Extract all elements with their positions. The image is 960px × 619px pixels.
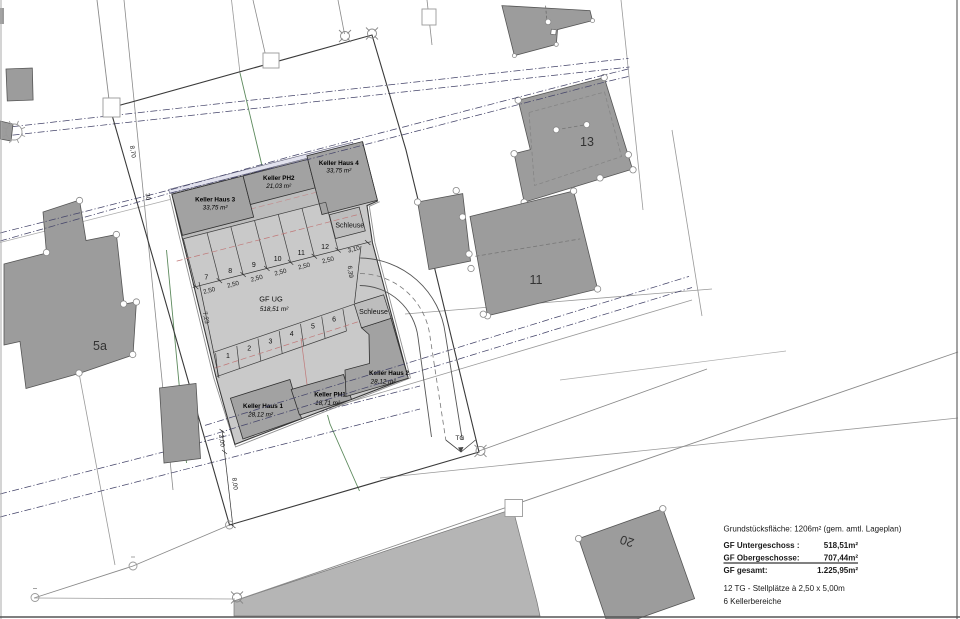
svg-text:GF UG: GF UG <box>259 295 283 304</box>
svg-text:8: 8 <box>228 268 232 275</box>
svg-text:Schleuse: Schleuse <box>335 223 364 230</box>
svg-text:18,71 m²: 18,71 m² <box>315 400 341 407</box>
svg-text:33,75 m²: 33,75 m² <box>326 168 352 175</box>
svg-text:9: 9 <box>252 262 256 269</box>
svg-text:21,03 m²: 21,03 m² <box>265 183 292 190</box>
svg-text:13: 13 <box>580 135 594 149</box>
svg-text:12: 12 <box>321 244 329 251</box>
svg-text:33,75 m²: 33,75 m² <box>203 204 229 211</box>
svg-text:518,51 m²: 518,51 m² <box>260 306 289 313</box>
svg-text:GF Untergeschoss :: GF Untergeschoss : <box>724 541 800 550</box>
svg-text:10: 10 <box>274 256 282 263</box>
svg-text:5a: 5a <box>93 339 107 353</box>
svg-text:7: 7 <box>204 274 208 281</box>
svg-text:518,51m²: 518,51m² <box>824 541 859 550</box>
svg-text:2: 2 <box>247 346 251 353</box>
svg-text:1.225,95m²: 1.225,95m² <box>817 566 858 575</box>
svg-text:GF Obergeschosse:: GF Obergeschosse: <box>724 554 800 563</box>
svg-text:3: 3 <box>268 338 272 345</box>
svg-text:Keller Haus 3: Keller Haus 3 <box>195 197 235 204</box>
svg-text:6 Kellerbereiche: 6 Kellerbereiche <box>724 597 782 606</box>
svg-text:Keller Haus 4: Keller Haus 4 <box>319 160 359 167</box>
svg-text:6: 6 <box>332 316 336 323</box>
svg-text:Schleuse: Schleuse <box>359 309 388 316</box>
svg-text:Grundstücksfläche: 1206m² (gem: Grundstücksfläche: 1206m² (gem. amtl. La… <box>724 525 902 534</box>
svg-text:4: 4 <box>290 331 294 338</box>
svg-text:707,44m²: 707,44m² <box>824 554 859 563</box>
svg-text:Keller Haus 1: Keller Haus 1 <box>243 403 283 410</box>
svg-text:5: 5 <box>311 324 315 331</box>
svg-text:11: 11 <box>298 250 305 257</box>
svg-text:12 TG - Stellplätze à 2,50 x 5: 12 TG - Stellplätze à 2,50 x 5,00m <box>724 584 846 593</box>
svg-text:Keller PH2: Keller PH2 <box>263 175 295 182</box>
svg-text:11: 11 <box>530 273 543 287</box>
svg-text:GF gesamt:: GF gesamt: <box>724 566 768 575</box>
svg-text:1: 1 <box>226 353 230 360</box>
svg-text:TG: TG <box>455 435 464 442</box>
